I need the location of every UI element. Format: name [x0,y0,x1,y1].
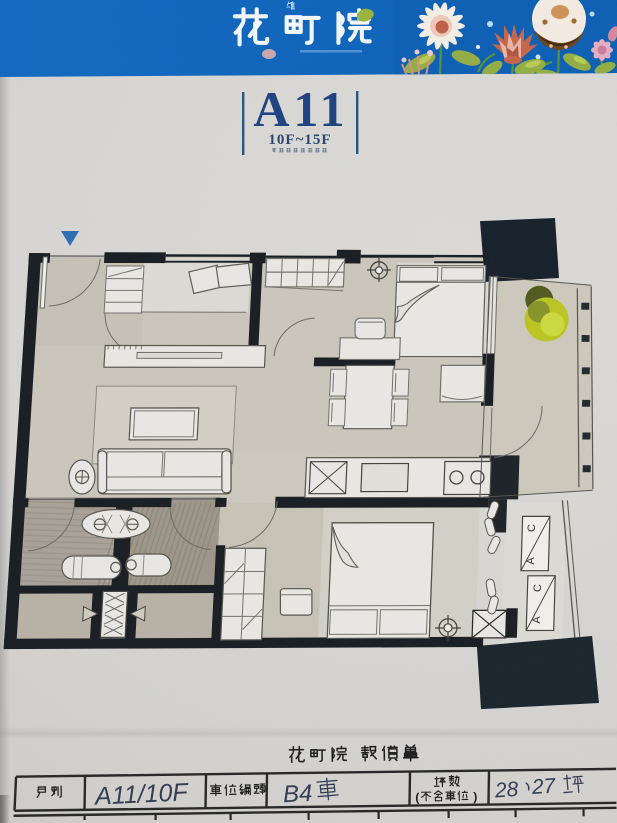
svg-text:A11/10F: A11/10F [92,778,190,811]
svg-text:A: A [531,616,543,624]
svg-text:(: ( [415,790,419,804]
svg-text:B4: B4 [282,780,313,808]
svg-text:C: C [526,524,538,532]
svg-text:28: 28 [493,778,519,803]
svg-text:27: 27 [530,774,557,799]
svg-text:): ) [473,790,477,804]
svg-text:A: A [525,557,537,565]
svg-text:C: C [532,584,544,592]
